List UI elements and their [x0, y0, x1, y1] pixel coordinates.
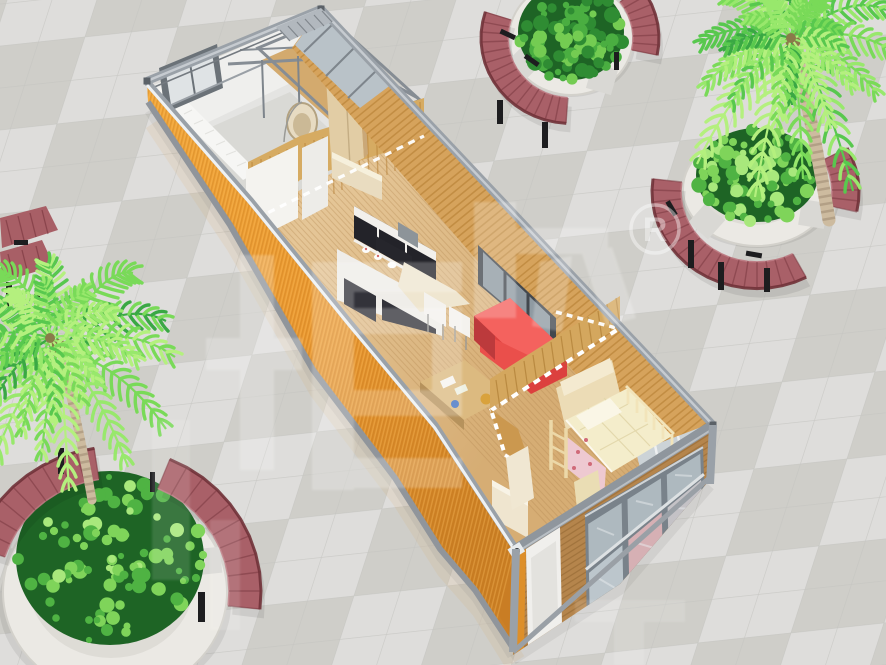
svg-text:R: R — [643, 211, 668, 249]
